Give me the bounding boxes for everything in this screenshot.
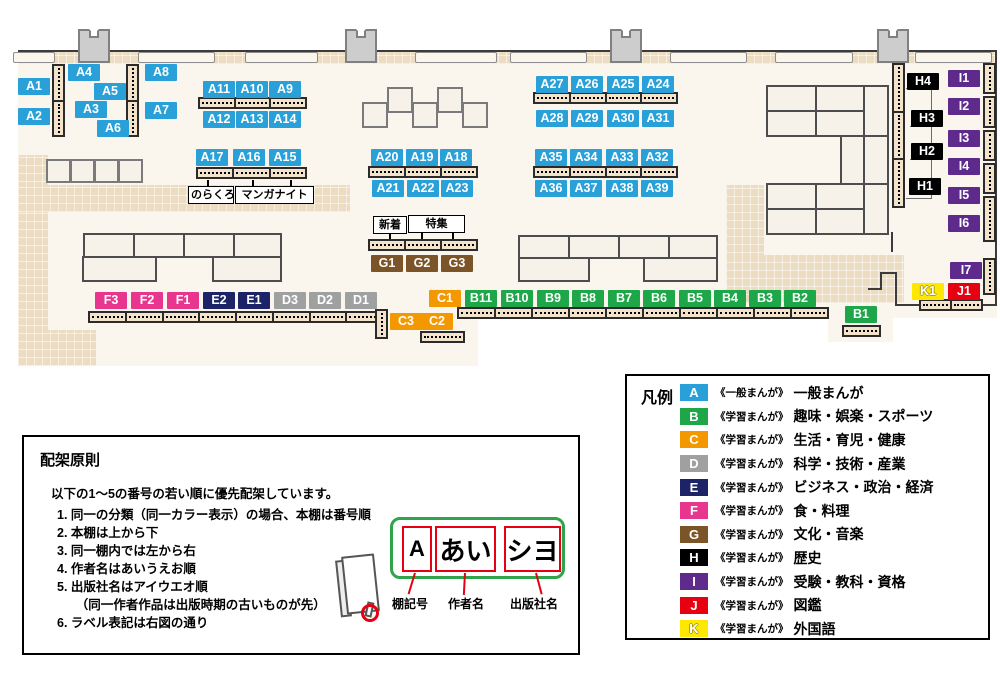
label-publisher: シヨ (504, 526, 561, 572)
legend-key-I: I (680, 573, 708, 590)
rule-2: 2. 本棚は上から下 (57, 522, 158, 541)
legend-key-E: E (680, 479, 708, 496)
table (618, 235, 670, 259)
legend-label: 外国語 (794, 619, 836, 639)
window (138, 52, 215, 63)
shelf-label-A5: A5 (94, 83, 126, 100)
shelf-label-A37: A37 (570, 180, 602, 197)
bookshelf (420, 331, 465, 343)
pillar (877, 29, 909, 63)
window (670, 52, 747, 63)
legend-category: 《学習まんが》 (715, 550, 789, 565)
legend-item-D: D 《学習まんが》 科学・技術・産業 (627, 452, 988, 476)
shelf-label-A16: A16 (233, 149, 265, 166)
shelf-label-I4: I4 (948, 158, 980, 175)
table (863, 85, 889, 137)
bookshelf (375, 309, 388, 339)
shelf-label-G1: G1 (371, 255, 403, 272)
bookshelf (52, 64, 65, 137)
shelf-label-A28: A28 (536, 110, 568, 127)
legend-label: ビジネス・政治・経済 (794, 477, 934, 497)
label-highlight-circle (361, 604, 379, 622)
shelf-label-H2: H2 (911, 143, 943, 160)
shelf-label-G3: G3 (441, 255, 473, 272)
table (518, 257, 590, 282)
caption-shelf-code: 棚記号 (392, 595, 428, 612)
bookshelf (842, 325, 881, 337)
window (245, 52, 318, 63)
shelf-label-B7: B7 (608, 290, 640, 307)
wall (895, 272, 897, 306)
table (412, 102, 438, 128)
shelf-label-H4: H4 (907, 73, 939, 90)
legend-label: 食・料理 (794, 501, 850, 521)
legend-key-D: D (680, 455, 708, 472)
shelf-label-C1: C1 (429, 290, 461, 307)
legend-key-B: B (680, 408, 708, 425)
legend-label: 一般まんが (794, 383, 864, 403)
table (70, 159, 95, 183)
shelf-label-A31: A31 (642, 110, 674, 127)
shelf-label-A2: A2 (18, 108, 50, 125)
table (766, 183, 817, 210)
shelf-label-I6: I6 (948, 215, 980, 232)
table (815, 208, 865, 235)
table (766, 85, 817, 112)
table (766, 110, 817, 137)
new-arrivals-label: 新着 (373, 216, 407, 234)
legend-item-C: C 《学習まんが》 生活・育児・健康 (627, 428, 988, 452)
legend-category: 《学習まんが》 (715, 456, 789, 471)
shelving-principles-box: 配架原則 以下の1～5の番号の若い順に優先配架しています。 1. 同一の分類（同… (22, 435, 580, 655)
shelf-label-A35: A35 (535, 149, 567, 166)
shelf-label-A6: A6 (97, 120, 129, 137)
caption-author: 作者名 (448, 595, 484, 612)
legend-category: 《学習まんが》 (715, 527, 789, 542)
bookshelf (983, 130, 996, 161)
shelf-label-A19: A19 (406, 149, 438, 166)
book-illustration (335, 553, 385, 623)
shelf-label-F2: F2 (131, 292, 163, 309)
bookshelf (983, 258, 996, 295)
legend-item-K: K 《学習まんが》 外国語 (627, 617, 988, 641)
shelf-label-A26: A26 (571, 76, 603, 93)
shelf-label-A12: A12 (203, 111, 235, 128)
rule-5: 5. 出版社名はアイウエオ順 (57, 576, 208, 595)
bookshelf (983, 163, 996, 194)
window (510, 52, 587, 63)
legend-item-F: F 《学習まんが》 食・料理 (627, 499, 988, 523)
shelf-label-A32: A32 (641, 149, 673, 166)
legend-key-A: A (680, 384, 708, 401)
table (133, 233, 185, 258)
legend-category: 《学習まんが》 (715, 432, 789, 447)
shelf-label-A3: A3 (75, 101, 107, 118)
legend-key-C: C (680, 431, 708, 448)
shelf-label-I5: I5 (948, 187, 980, 204)
pillar (345, 29, 377, 63)
shelf-label-J1: J1 (948, 283, 980, 300)
shelf-label-E1: E1 (238, 292, 270, 309)
legend-key-H: H (680, 549, 708, 566)
wall (891, 232, 893, 252)
table (815, 85, 865, 112)
shelf-label-A36: A36 (535, 180, 567, 197)
legend-key-J: J (680, 597, 708, 614)
shelf-label-I2: I2 (948, 98, 980, 115)
legend-label: 生活・育児・健康 (794, 430, 906, 450)
shelf-label-A4: A4 (68, 64, 100, 81)
library-floor-map-page: { "map": { "badges": { "A1":"A1","A2":"A… (0, 0, 1000, 700)
rule-3: 3. 同一棚内では左から右 (57, 540, 196, 559)
rule-6: 6. ラベル表記は右図の通り (57, 612, 208, 631)
legend-item-I: I 《学習まんが》 受験・教科・資格 (627, 570, 988, 594)
shelf-label-B2: B2 (784, 290, 816, 307)
legend-item-E: E 《学習まんが》 ビジネス・政治・経済 (627, 475, 988, 499)
table (668, 235, 718, 259)
window (415, 52, 497, 63)
shelf-label-A8: A8 (145, 64, 177, 81)
shelf-label-A23: A23 (441, 180, 473, 197)
table (462, 102, 488, 128)
table (643, 257, 718, 282)
table (233, 233, 282, 258)
shelf-label-I7: I7 (950, 262, 982, 279)
shelf-label-A13: A13 (236, 111, 268, 128)
window (13, 52, 55, 63)
legend-key-K: K (680, 620, 708, 637)
legend-label: 受験・教科・資格 (794, 572, 906, 592)
pillar (610, 29, 642, 63)
norakuro-label: のらくろ (188, 186, 234, 204)
shelf-label-A22: A22 (407, 180, 439, 197)
shelf-label-A9: A9 (269, 81, 301, 98)
shelf-label-D2: D2 (309, 292, 341, 309)
legend-label: 図鑑 (794, 595, 822, 615)
bookshelf (983, 63, 996, 94)
legend-label: 文化・音楽 (794, 524, 864, 544)
shelf-label-A24: A24 (642, 76, 674, 93)
window (775, 52, 853, 63)
legend-rows: A 《一般まんが》 一般まんが B 《学習まんが》 趣味・娯楽・スポーツ C 《… (627, 381, 988, 641)
shelf-label-F1: F1 (167, 292, 199, 309)
shelf-label-A14: A14 (269, 111, 301, 128)
table (183, 233, 235, 258)
carrel-wall (906, 198, 931, 199)
shelf-label-B10: B10 (501, 290, 533, 307)
table (568, 235, 620, 259)
window (915, 52, 992, 63)
bookshelf (919, 299, 983, 311)
table (362, 102, 388, 128)
legend-item-A: A 《一般まんが》 一般まんが (627, 381, 988, 405)
shelf-label-B9: B9 (537, 290, 569, 307)
shelf-label-B3: B3 (749, 290, 781, 307)
shelf-label-A15: A15 (269, 149, 301, 166)
shelf-label-A1: A1 (18, 78, 50, 95)
legend-box: 凡例 A 《一般まんが》 一般まんが B 《学習まんが》 趣味・娯楽・スポーツ … (625, 374, 990, 640)
legend-category: 《学習まんが》 (715, 503, 789, 518)
shelf-label-A18: A18 (440, 149, 472, 166)
shelf-label-A38: A38 (606, 180, 638, 197)
shelf-label-H1: H1 (909, 178, 941, 195)
shelf-label-A7: A7 (145, 102, 177, 119)
legend-item-B: B 《学習まんが》 趣味・娯楽・スポーツ (627, 405, 988, 429)
legend-category: 《学習まんが》 (715, 574, 789, 589)
legend-category: 《学習まんが》 (715, 598, 789, 613)
bookshelf (983, 96, 996, 128)
table (815, 183, 865, 210)
shelf-label-A20: A20 (371, 149, 403, 166)
shelf-label-B4: B4 (714, 290, 746, 307)
table (863, 183, 889, 235)
table (118, 159, 143, 183)
table (863, 135, 889, 185)
table (387, 87, 413, 113)
shelf-label-B5: B5 (679, 290, 711, 307)
shelf-label-A25: A25 (607, 76, 639, 93)
shelf-label-A21: A21 (372, 180, 404, 197)
legend-key-F: F (680, 502, 708, 519)
legend-category: 《学習まんが》 (715, 621, 789, 636)
shelf-label-D1: D1 (345, 292, 377, 309)
bookshelf (196, 167, 307, 179)
caption-publisher: 出版社名 (510, 595, 558, 612)
principles-intro: 以下の1～5の番号の若い順に優先配架しています。 (51, 483, 338, 502)
legend-label: 歴史 (794, 548, 822, 568)
shelf-label-A17: A17 (196, 149, 228, 166)
legend-item-J: J 《学習まんが》 図鑑 (627, 593, 988, 617)
bookshelf (892, 63, 905, 208)
rule-5-note: （同一作者作品は出版時期の古いものが先） (57, 594, 326, 613)
wall (868, 288, 882, 290)
shelf-label-C3: C3 (390, 313, 422, 330)
table (212, 256, 282, 282)
label-author: あい (435, 526, 496, 572)
shelf-label-C2: C2 (421, 313, 453, 330)
shelf-label-B1: B1 (845, 306, 877, 323)
shelf-label-H3: H3 (911, 110, 943, 127)
bookshelf (533, 92, 678, 104)
label-shelf-code: A (402, 526, 432, 572)
legend-category: 《学習まんが》 (715, 480, 789, 495)
shelf-label-A34: A34 (570, 149, 602, 166)
shelf-label-E2: E2 (203, 292, 235, 309)
shelf-label-A11: A11 (203, 81, 235, 98)
bookshelf (88, 311, 384, 323)
manga-night-label: マンガナイト (235, 186, 314, 204)
shelf-label-D3: D3 (274, 292, 306, 309)
bookshelf (533, 166, 678, 178)
pointer-line (463, 573, 466, 595)
bookshelf (368, 166, 478, 178)
shelf-label-A10: A10 (236, 81, 268, 98)
legend-label: 趣味・娯楽・スポーツ (794, 406, 934, 426)
shelf-label-A33: A33 (606, 149, 638, 166)
legend-item-G: G 《学習まんが》 文化・音楽 (627, 523, 988, 547)
bookshelf (198, 97, 307, 109)
rule-1: 1. 同一の分類（同一カラー表示）の場合、本棚は番号順 (57, 504, 371, 523)
shelf-label-B11: B11 (465, 290, 497, 307)
legend-item-H: H 《学習まんが》 歴史 (627, 546, 988, 570)
shelf-label-A30: A30 (607, 110, 639, 127)
legend-category: 《一般まんが》 (715, 385, 789, 400)
legend-label: 科学・技術・産業 (794, 454, 906, 474)
table (82, 256, 157, 282)
principles-title: 配架原則 (40, 449, 100, 470)
shelf-label-K1: K1 (912, 283, 944, 300)
table (437, 87, 463, 113)
shelf-label-F3: F3 (95, 292, 127, 309)
table (840, 135, 865, 185)
table (46, 159, 71, 183)
bookshelf (368, 239, 478, 251)
table (815, 110, 865, 137)
pillar (78, 29, 110, 63)
shelf-label-B6: B6 (643, 290, 675, 307)
bookshelf (457, 307, 829, 319)
shelf-label-G2: G2 (406, 255, 438, 272)
feature-label: 特集 (408, 215, 465, 233)
table (766, 208, 817, 235)
table (518, 235, 570, 259)
legend-category: 《学習まんが》 (715, 409, 789, 424)
table (94, 159, 119, 183)
shelf-label-A27: A27 (536, 76, 568, 93)
shelf-label-B8: B8 (572, 290, 604, 307)
wall (880, 272, 897, 274)
legend-key-G: G (680, 526, 708, 543)
walkway (18, 330, 96, 366)
shelf-label-I3: I3 (948, 130, 980, 147)
bookshelf (983, 196, 996, 242)
shelf-label-A39: A39 (641, 180, 673, 197)
shelf-label-A29: A29 (571, 110, 603, 127)
shelf-label-I1: I1 (948, 70, 980, 87)
rule-4: 4. 作者名はあいうえお順 (57, 558, 196, 577)
table (83, 233, 135, 258)
